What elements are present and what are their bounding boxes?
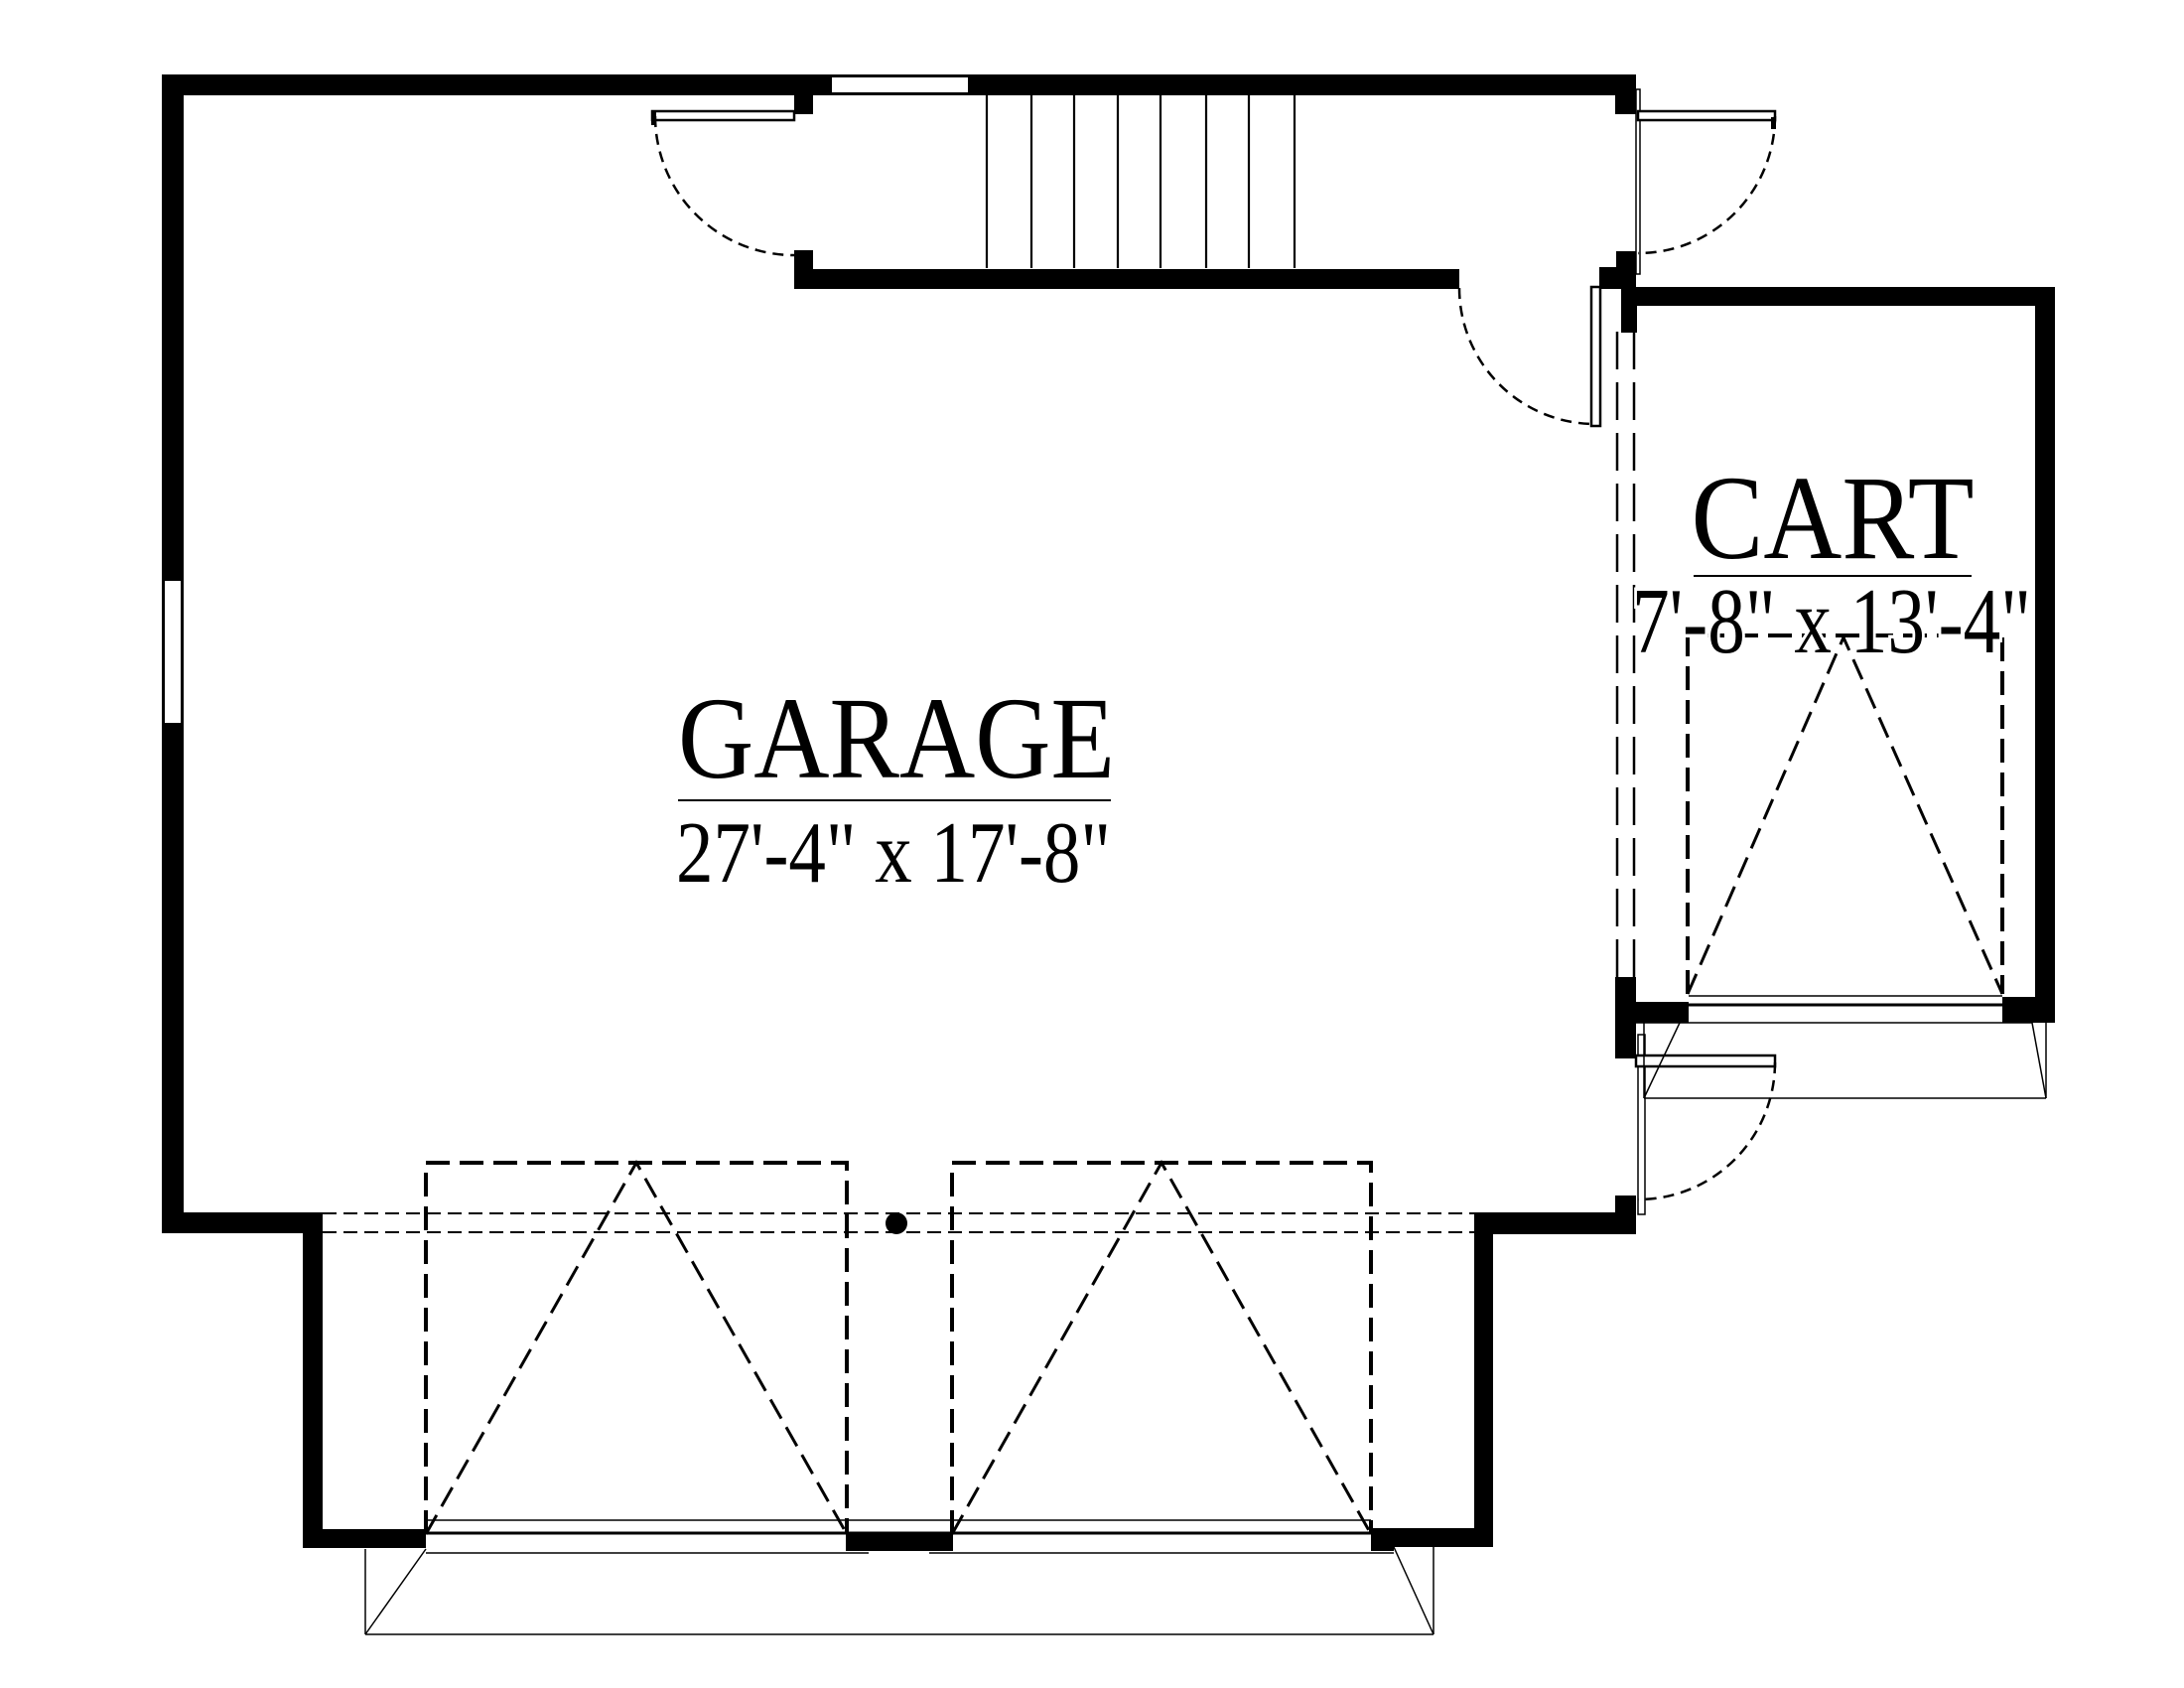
svg-text:7'-8" x 13'-4": 7'-8" x 13'-4" [1632,570,2031,673]
svg-text:27'-4" x 17'-8": 27'-4" x 17'-8" [676,805,1111,902]
svg-text:CART: CART [1692,452,1975,585]
svg-text:GARAGE: GARAGE [678,673,1115,803]
